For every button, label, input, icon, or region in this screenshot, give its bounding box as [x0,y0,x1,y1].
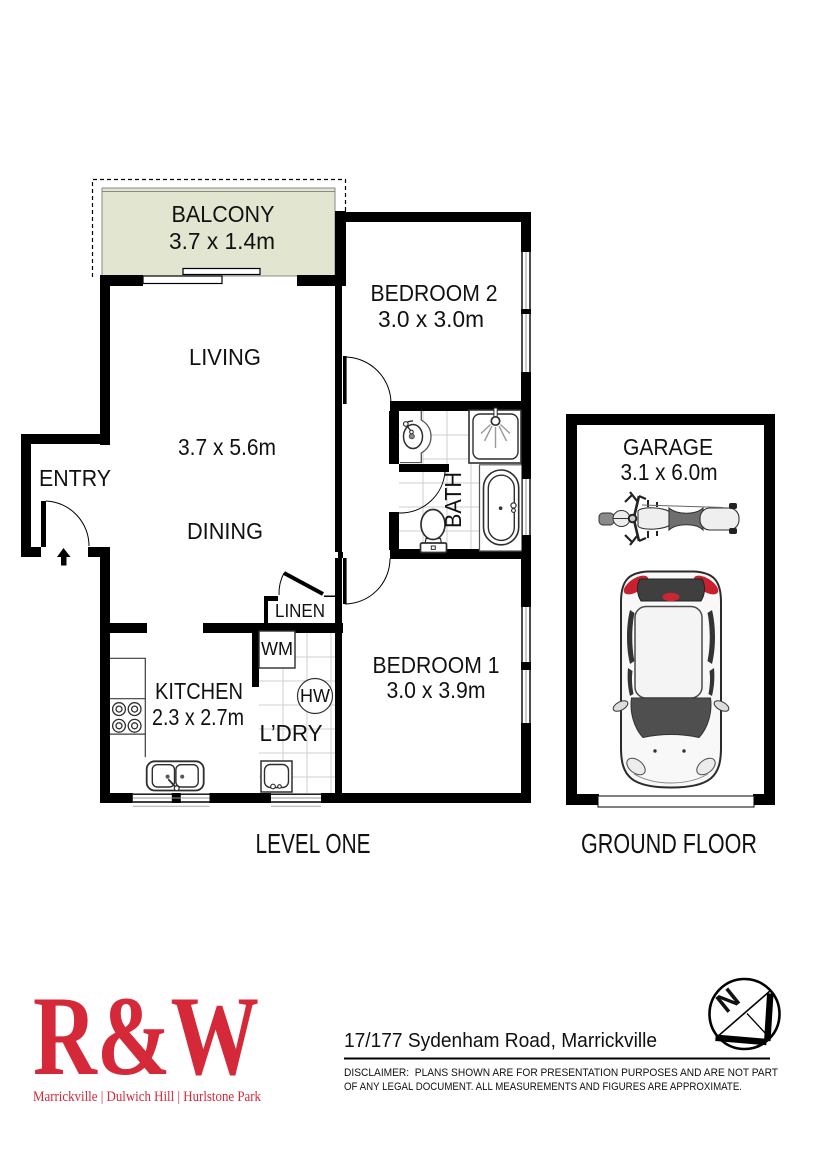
svg-text:WM: WM [261,639,293,659]
svg-text:GROUND FLOOR: GROUND FLOOR [581,828,757,859]
svg-text:GARAGE: GARAGE [623,434,713,460]
svg-text:R&W: R&W [33,972,259,1098]
svg-text:LINEN: LINEN [275,601,325,621]
svg-text:LIVING: LIVING [189,344,261,370]
svg-text:BEDROOM 2: BEDROOM 2 [371,280,498,306]
svg-text:KITCHEN: KITCHEN [155,678,243,704]
svg-text:HW: HW [300,686,330,706]
svg-text:3.7 x 5.6m: 3.7 x 5.6m [178,434,276,460]
svg-text:L’DRY: L’DRY [260,720,323,746]
svg-text:2.3 x 2.7m: 2.3 x 2.7m [152,704,244,730]
svg-text:DINING: DINING [187,518,263,544]
svg-text:OF ANY LEGAL DOCUMENT. ALL MEA: OF ANY LEGAL DOCUMENT. ALL MEASUREMENTS … [344,1081,742,1093]
svg-text:ENTRY: ENTRY [39,465,111,491]
svg-text:BEDROOM 1: BEDROOM 1 [373,652,500,678]
svg-text:BALCONY: BALCONY [172,201,275,227]
svg-text:DISCLAIMER: PLANS SHOWN ARE F: DISCLAIMER: PLANS SHOWN ARE FOR PRESENTA… [344,1067,778,1079]
svg-text:3.0 x 3.0m: 3.0 x 3.0m [378,306,484,332]
svg-text:LEVEL ONE: LEVEL ONE [256,828,371,859]
svg-text:3.0 x 3.9m: 3.0 x 3.9m [387,677,486,703]
svg-text:Marrickville | Dulwich Hill |: Marrickville | Dulwich Hill | Hurlstone … [33,1089,261,1105]
svg-text:17/177 Sydenham Road, Marrickv: 17/177 Sydenham Road, Marrickville [344,1029,657,1052]
svg-text:3.1 x 6.0m: 3.1 x 6.0m [621,459,718,485]
svg-text:3.7 x 1.4m: 3.7 x 1.4m [169,228,275,254]
svg-text:BATH: BATH [440,472,466,528]
